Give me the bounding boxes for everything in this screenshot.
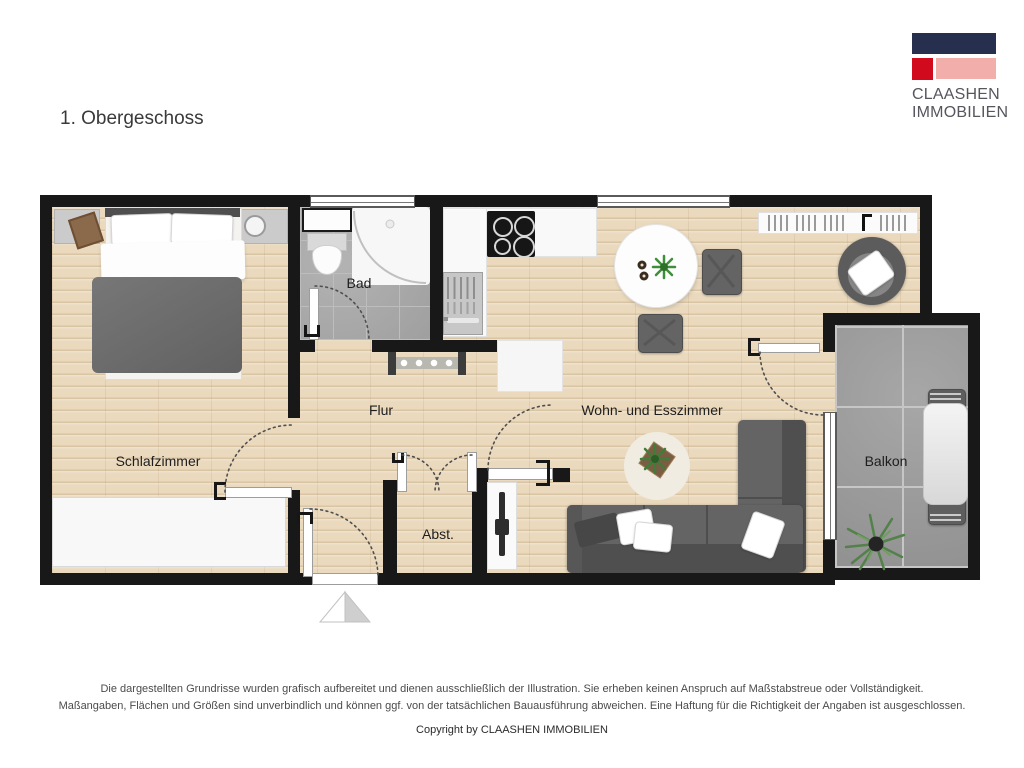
wall-segment [968,313,980,580]
burner [494,238,511,255]
floorplan-page: CLAASHEN IMMOBILIEN 1. Obergeschoss [0,0,1024,768]
wall-segment [823,325,835,352]
dining-chair [638,314,683,353]
wall-segment [288,340,315,352]
rug [624,432,690,500]
door-handle [748,338,760,356]
floor-plan: Schlafzimmer Bad Flur Abst. Wohn- und Es… [40,195,980,585]
wall-segment [40,195,52,585]
copyright-line: Copyright by CLAASHEN IMMOBILIEN [0,724,1024,736]
cooktop [487,211,535,257]
door-leaf-storage-right [467,452,477,492]
bed-pillow [110,213,173,246]
logo-bar-navy [912,33,996,54]
logo-bar-pink [936,58,996,79]
door-handle [536,460,550,486]
window-symbol [597,195,730,208]
books [768,215,790,231]
wall-segment [430,195,443,352]
window-symbol [310,195,415,208]
door-leaf-bedroom [225,487,292,498]
books [824,215,846,231]
burner [493,217,513,237]
radiator-post [458,351,466,375]
wall-segment [472,480,487,585]
door-handle [297,512,313,524]
door-handle [214,482,226,500]
disclaimer-line2: Maßangaben, Flächen und Größen sind unve… [0,700,1024,712]
disclaimer-line1: Die dargestellten Grundrisse wurden graf… [0,683,1024,695]
logo-square-red [912,58,933,80]
books [796,215,820,231]
room-label-balcony: Balkon [836,453,936,469]
logo-name-line2: IMMOBILIEN [912,104,1008,122]
books [880,215,906,231]
page-title: 1. Obergeschoss [60,108,204,130]
door-handle [304,325,320,337]
logo-name-line1: CLAASHEN [912,86,1000,104]
company-logo: CLAASHEN IMMOBILIEN [908,28,1018,128]
wall-segment [920,195,932,325]
wall-segment [288,195,300,418]
shower [352,207,430,285]
entrance-threshold [312,573,378,585]
sofa-seam [706,505,708,544]
wall-segment [823,540,835,573]
wall-segment [383,480,397,585]
radiator-symbol [396,357,458,369]
entrance-arrow-icon [320,592,370,622]
wall-segment [553,468,570,482]
sofa-pillow [633,521,674,553]
room-label-bedroom: Schlafzimmer [78,453,238,469]
wall-segment [40,573,312,585]
room-label-hall: Flur [341,402,421,418]
door-handle [392,453,404,463]
balcony-window-symbol [823,412,837,540]
bed-duvet [92,277,242,373]
sink-drainer [447,277,479,299]
sofa-seam [738,497,782,499]
clock-on-nightstand [244,215,266,237]
wall-segment [823,568,980,580]
burner [514,216,535,237]
wardrobe [52,497,286,567]
wall-segment [40,195,932,207]
dining-table [615,225,697,307]
burner [513,236,535,258]
radiator-post [388,351,396,375]
bathroom-sink [302,208,352,232]
wall-segment [288,490,300,585]
wall-segment [372,340,497,352]
door-leaf-balcony [758,343,820,353]
dining-chair [702,249,742,295]
room-label-storage: Abst. [408,526,468,542]
room-label-living: Wohn- und Esszimmer [552,402,752,418]
room-label-bath: Bad [329,275,389,291]
wall-segment [823,313,980,325]
sink-edge [447,318,479,323]
wall-segment [477,573,835,585]
sink-drainer [447,302,479,314]
kitchen-cabinet [497,340,563,392]
tv-mount [495,519,509,535]
bookend [862,214,872,231]
